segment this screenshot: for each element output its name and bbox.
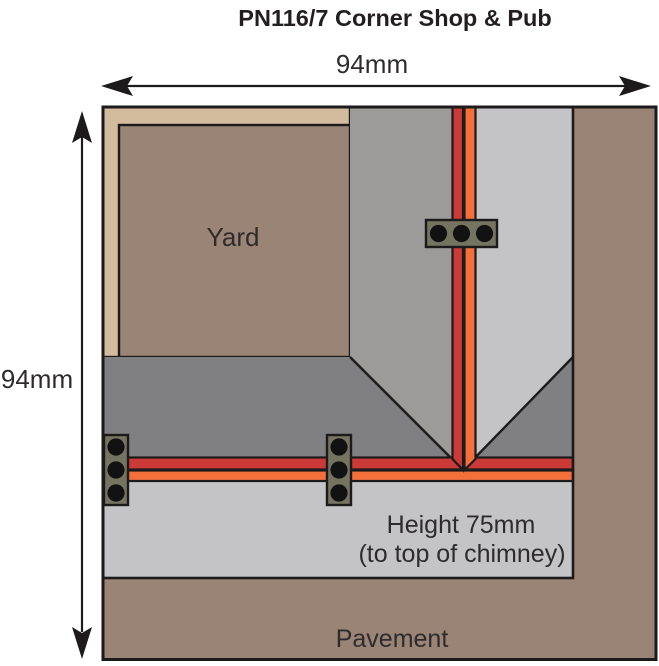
footprint-plan-svg: Yard Height 75mm (to top of chimney) Pav…	[0, 0, 659, 666]
width-dimension-arrow	[101, 76, 651, 96]
height-note-line1: Height 75mm	[387, 511, 536, 539]
ridge-vertical-orange	[465, 107, 476, 470]
chimney-middle	[327, 435, 351, 505]
chimney-pot	[430, 225, 447, 242]
chimney-pot	[476, 225, 493, 242]
height-dimension-label: 94mm	[1, 364, 73, 394]
chimney-pot	[453, 225, 470, 242]
chimney-pot	[107, 484, 124, 501]
yard-label: Yard	[207, 222, 260, 252]
chimney-pot	[107, 461, 124, 478]
chimney-pot	[107, 438, 124, 455]
height-note-line2: (to top of chimney)	[358, 540, 565, 568]
chimney-pot	[330, 484, 347, 501]
chimney-pot	[330, 461, 347, 478]
chimney-top	[426, 220, 497, 247]
width-dimension-label: 94mm	[336, 49, 408, 79]
chimney-left	[104, 435, 128, 505]
plan-diagram: Yard Height 75mm (to top of chimney) Pav…	[0, 0, 659, 666]
ridge-vertical-red	[453, 107, 464, 470]
page-title: PN116/7 Corner Shop & Pub	[238, 5, 551, 31]
height-dimension-arrow	[72, 111, 92, 659]
chimney-pot	[330, 438, 347, 455]
pavement-label: Pavement	[336, 625, 449, 653]
